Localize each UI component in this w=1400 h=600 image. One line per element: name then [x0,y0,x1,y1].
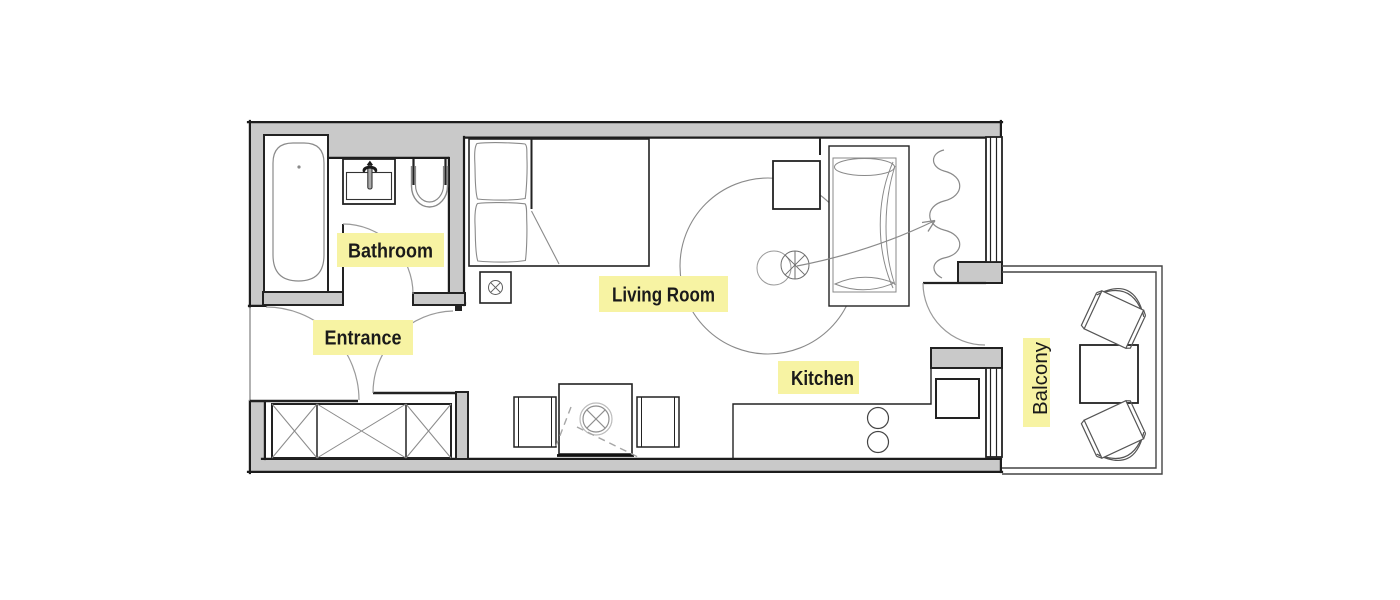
svg-text:Kitchen: Kitchen [791,368,854,390]
svg-text:Entrance: Entrance [325,328,402,350]
svg-text:Balcony: Balcony [1030,342,1052,415]
svg-text:Living Room: Living Room [612,285,715,307]
svg-text:Bathroom: Bathroom [348,241,433,263]
